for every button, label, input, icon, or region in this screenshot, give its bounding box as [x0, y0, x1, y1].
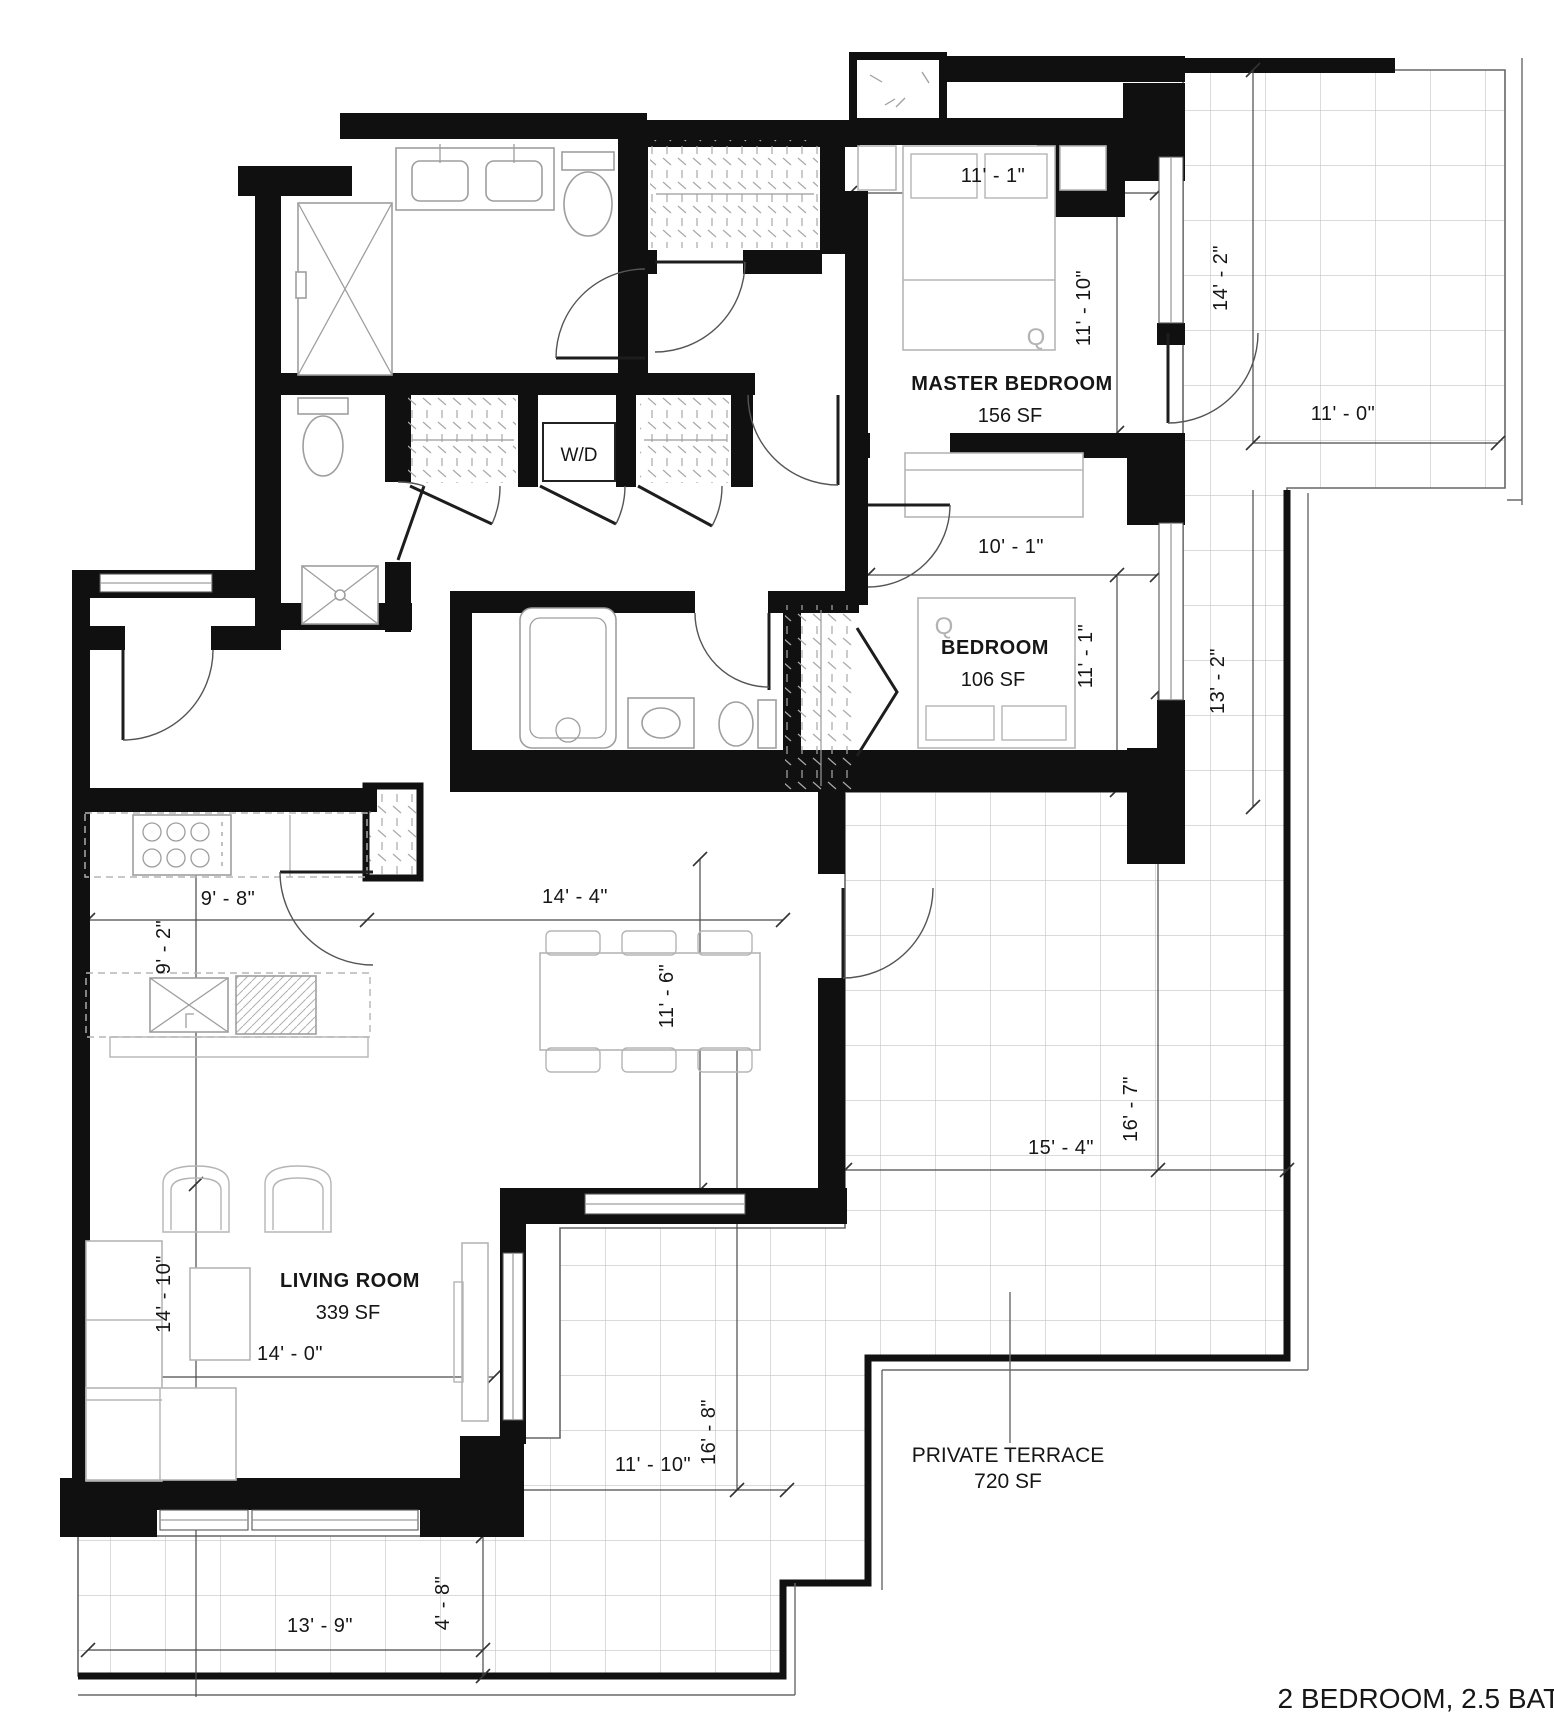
wall-segment [340, 113, 647, 139]
wall-segment [845, 191, 868, 435]
nightstand [1060, 146, 1106, 190]
laundry-label: W/D [561, 445, 598, 466]
walkin-closet-door [655, 262, 745, 352]
dining-set [540, 931, 760, 1072]
shower-master [296, 203, 392, 375]
shower-powder [302, 566, 378, 624]
wall-segment [385, 562, 411, 632]
room-label-living-room: LIVING ROOM [280, 1270, 420, 1292]
wall-segment [85, 626, 125, 650]
wall-segment [157, 1478, 420, 1510]
wall-segment [1157, 323, 1185, 345]
dim-dining-width: 14' - 4" [542, 886, 608, 908]
floor-plan: 11' - 1" 11' - 10" MASTER BEDROOM 156 SF… [0, 0, 1554, 1724]
dim-dining-depth: 11' - 6" [656, 964, 678, 1029]
wall-segment [616, 395, 636, 487]
entry-door [123, 650, 213, 740]
bedroom-closet-bifold [857, 628, 897, 756]
dim-terrace-north-depth: 14' - 2" [1210, 245, 1232, 311]
dim-terrace-south-width: 15' - 4" [1028, 1137, 1094, 1159]
bath2-door [695, 613, 769, 690]
vanity-bath2 [628, 698, 694, 748]
dim-terrace-north-width: 11' - 0" [1311, 403, 1376, 425]
wall-segment [768, 591, 785, 613]
dim-terrace-bottom-depth: 4' - 8" [432, 1576, 454, 1630]
toilet-bath2 [719, 700, 776, 748]
living-room-furniture [86, 1166, 488, 1481]
dim-bedroom-width: 10' - 1" [978, 536, 1044, 558]
room-area-bedroom: 106 SF [961, 669, 1025, 691]
armchair [265, 1166, 331, 1232]
coffee-table [190, 1268, 250, 1360]
powder-door [398, 482, 424, 560]
window [160, 1510, 248, 1530]
toilet-powder [298, 398, 348, 476]
dim-master-depth: 11' - 10" [1073, 270, 1095, 346]
dim-kitchen-width: 9' - 8" [201, 888, 255, 910]
room-area-living-room: 339 SF [316, 1302, 380, 1324]
toilet-master [562, 152, 614, 236]
shaft [853, 56, 943, 122]
wall-segment [83, 788, 377, 812]
wall-segment [940, 56, 1185, 82]
bathtub [520, 608, 616, 748]
laundry-door [540, 486, 625, 524]
wall-segment [743, 250, 822, 274]
terrace-tiles [78, 58, 1505, 1676]
column [1127, 748, 1185, 864]
kitchen-island [86, 973, 370, 1057]
window [100, 574, 212, 592]
wall-segment [845, 433, 870, 458]
dim-terrace-east-depth: 13' - 2" [1207, 648, 1229, 714]
column [1127, 433, 1185, 525]
wall-segment [255, 373, 755, 395]
wall-segment [618, 137, 648, 377]
sofa-chaise [86, 1388, 236, 1480]
wall-segment [60, 1478, 157, 1537]
room-area-terrace: 720 SF [974, 1470, 1042, 1493]
plan-title: 2 BEDROOM, 2.5 BATH [1278, 1683, 1554, 1714]
wall-segment [1157, 83, 1185, 157]
dim-terrace-west-width: 11' - 10" [615, 1454, 691, 1476]
window [1159, 157, 1183, 323]
entry-closet [366, 786, 420, 878]
bed-size-tag: Q [935, 613, 954, 640]
dim-master-width: 11' - 1" [961, 165, 1026, 187]
window [585, 1194, 745, 1214]
window [252, 1510, 418, 1530]
wall-segment [818, 978, 845, 1193]
wall-segment [818, 790, 845, 874]
dim-bedroom-depth: 11' - 1" [1075, 624, 1097, 689]
hall-closet-door [410, 486, 500, 524]
kitchen-counter [85, 813, 367, 877]
dresser [905, 453, 1083, 517]
window [1159, 523, 1183, 700]
room-area-master-bedroom: 156 SF [978, 405, 1042, 427]
entry-closet-door [280, 872, 373, 965]
double-vanity [396, 144, 554, 210]
dim-living-depth: 14' - 10" [153, 1255, 175, 1333]
wall-segment [1157, 700, 1185, 750]
wall-segment [255, 166, 281, 632]
hall-closet-door [638, 486, 722, 526]
master-bedroom-door [748, 395, 838, 485]
terrace-top-wall [1183, 58, 1395, 73]
wall-segment [845, 456, 868, 605]
nightstand [858, 146, 896, 190]
dishwasher [236, 976, 316, 1034]
wall-segment [518, 395, 538, 487]
room-label-master-bedroom: MASTER BEDROOM [911, 373, 1112, 395]
dim-terrace-south-depth: 16' - 7" [1120, 1076, 1142, 1142]
dim-terrace-west-depth: 16' - 8" [698, 1399, 720, 1465]
room-label-bedroom: BEDROOM [941, 637, 1049, 659]
room-label-terrace: PRIVATE TERRACE [912, 1444, 1105, 1467]
dim-terrace-bottom-width: 13' - 9" [287, 1615, 353, 1637]
dim-living-width: 14' - 0" [257, 1343, 323, 1365]
column [420, 1478, 524, 1537]
wall-segment [820, 137, 845, 254]
window [503, 1253, 523, 1420]
dining-table [540, 953, 760, 1050]
bed-size-tag: Q [1027, 324, 1046, 351]
floor-plan-page: 11' - 1" 11' - 10" MASTER BEDROOM 156 SF… [0, 0, 1554, 1724]
dim-kitchen-depth: 9' - 2" [153, 920, 175, 974]
tv-console [462, 1243, 488, 1421]
